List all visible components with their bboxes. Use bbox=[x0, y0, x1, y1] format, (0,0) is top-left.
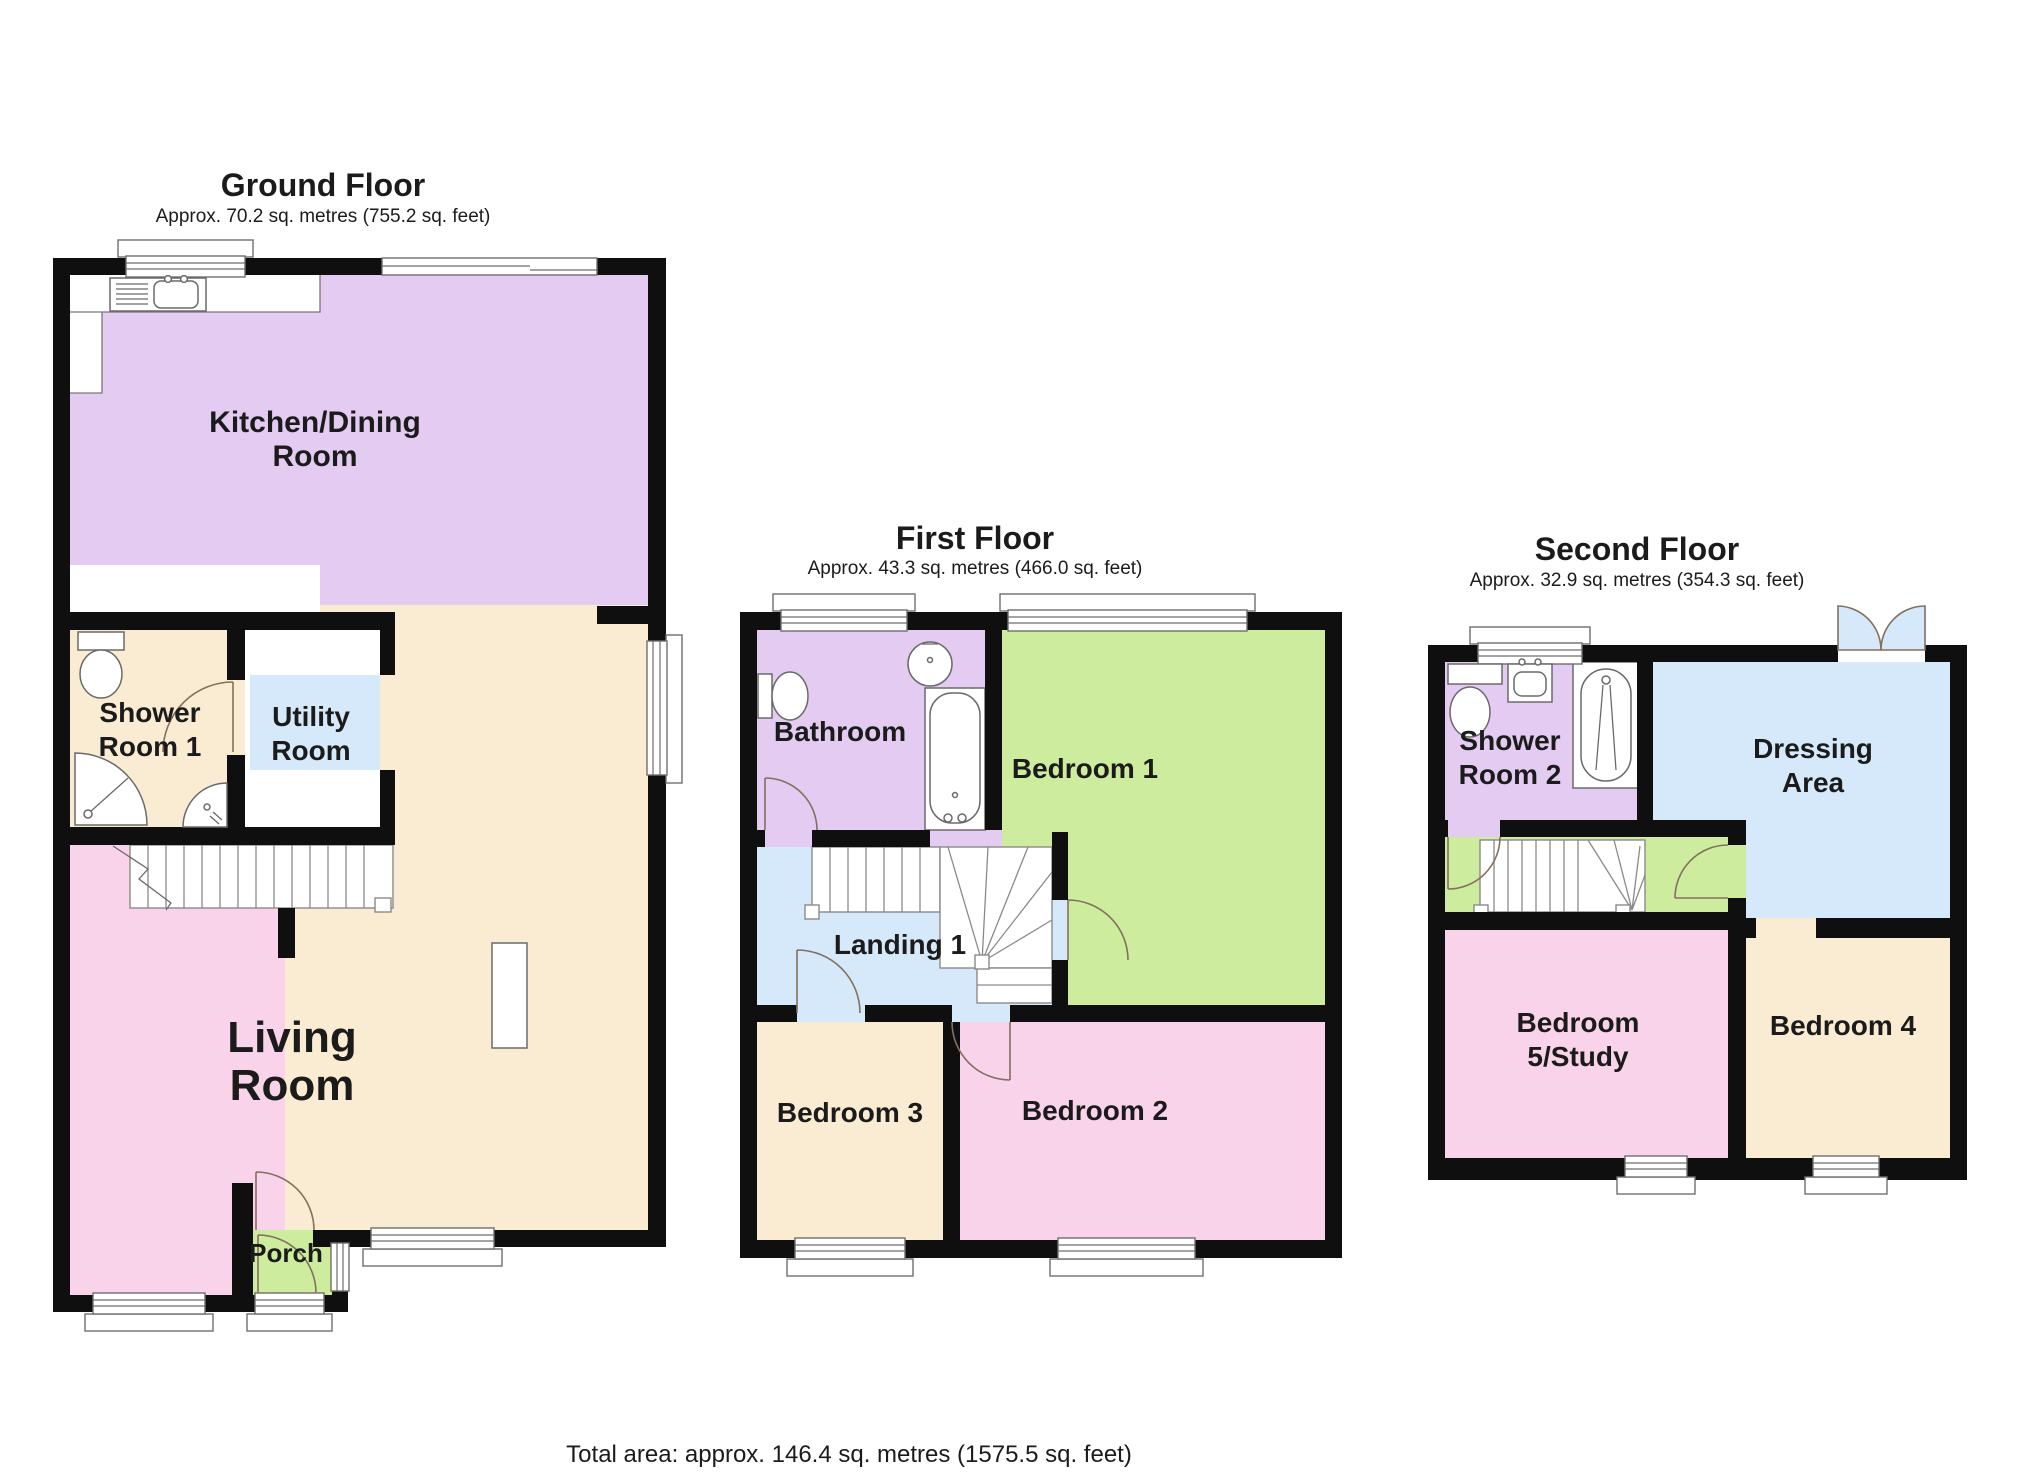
room-label-dressing: Dressing bbox=[1753, 733, 1873, 764]
shower-cubicle-icon bbox=[1573, 662, 1640, 788]
total-area-label: Total area: approx. 146.4 sq. metres (15… bbox=[566, 1441, 1132, 1468]
ground-floor-plan: Ground Floor Approx. 70.2 sq. metres (75… bbox=[53, 167, 682, 1331]
stair-newel bbox=[805, 905, 819, 919]
window bbox=[1470, 627, 1590, 664]
window bbox=[787, 1238, 913, 1276]
window bbox=[85, 1293, 213, 1331]
kitchen-counter-left bbox=[70, 275, 102, 393]
window bbox=[647, 635, 682, 783]
first-floor-title: First Floor bbox=[896, 520, 1054, 556]
basin-icon bbox=[1508, 659, 1552, 702]
room-label-shower1: Shower bbox=[99, 697, 200, 728]
kitchen-sink-icon bbox=[110, 276, 206, 311]
window bbox=[382, 258, 597, 275]
stair-newel bbox=[975, 955, 989, 969]
room-label-dressing-2: Area bbox=[1782, 767, 1845, 798]
room-label-living: Living bbox=[227, 1013, 357, 1062]
bathtub-icon bbox=[925, 688, 985, 830]
room-kitchen-dining bbox=[70, 275, 648, 605]
kitchen-floor-gap bbox=[70, 565, 320, 612]
window bbox=[773, 594, 915, 631]
floorplan-page: Ground Floor Approx. 70.2 sq. metres (75… bbox=[0, 0, 2025, 1473]
window bbox=[1617, 1156, 1695, 1194]
floorplan-canvas: Ground Floor Approx. 70.2 sq. metres (75… bbox=[0, 0, 2025, 1473]
room-bedroom3 bbox=[757, 1022, 952, 1240]
room-label-bedroom5-2: 5/Study bbox=[1527, 1041, 1629, 1072]
room-label-bedroom3: Bedroom 3 bbox=[777, 1097, 923, 1128]
room-label-bathroom: Bathroom bbox=[774, 716, 906, 747]
room-label-utility-2: Room bbox=[271, 735, 350, 766]
window bbox=[118, 240, 253, 277]
room-label-utility: Utility bbox=[272, 701, 350, 732]
room-label-kitchen-2: Room bbox=[273, 440, 358, 473]
room-label-shower1-2: Room 1 bbox=[99, 731, 202, 762]
room-label-bedroom1: Bedroom 1 bbox=[1012, 753, 1158, 784]
second-floor-subtitle: Approx. 32.9 sq. metres (354.3 sq. feet) bbox=[1470, 570, 1805, 591]
stair-newel bbox=[375, 898, 391, 912]
room-label-bedroom4: Bedroom 4 bbox=[1770, 1010, 1917, 1041]
window bbox=[1805, 1156, 1887, 1194]
window bbox=[363, 1228, 502, 1266]
staircase bbox=[113, 845, 393, 912]
room-label-shower2-2: Room 2 bbox=[1459, 759, 1562, 790]
first-floor-subtitle: Approx. 43.3 sq. metres (466.0 sq. feet) bbox=[808, 558, 1143, 579]
room-label-kitchen: Kitchen/Dining bbox=[209, 406, 421, 439]
basin-icon bbox=[908, 642, 952, 686]
room-label-bedroom5: Bedroom bbox=[1517, 1007, 1640, 1038]
second-floor-plan: Second Floor Approx. 32.9 sq. metres (35… bbox=[1428, 531, 1967, 1194]
toilet-icon bbox=[758, 672, 808, 720]
window bbox=[1000, 594, 1255, 631]
ground-floor-title: Ground Floor bbox=[221, 167, 425, 203]
staircase bbox=[1474, 840, 1645, 919]
room-label-living-2: Room bbox=[230, 1061, 355, 1110]
second-floor-title: Second Floor bbox=[1535, 531, 1739, 567]
window bbox=[247, 1293, 332, 1331]
room-label-bedroom2: Bedroom 2 bbox=[1022, 1095, 1168, 1126]
window bbox=[1050, 1238, 1203, 1276]
ground-floor-subtitle: Approx. 70.2 sq. metres (755.2 sq. feet) bbox=[156, 206, 491, 227]
room-bedroom2 bbox=[952, 1022, 1325, 1240]
double-door-icon bbox=[1838, 606, 1925, 650]
first-floor-plan: First Floor Approx. 43.3 sq. metres (466… bbox=[740, 520, 1342, 1276]
toilet-icon bbox=[78, 632, 124, 698]
room-label-shower2: Shower bbox=[1459, 725, 1560, 756]
room-label-landing1: Landing 1 bbox=[834, 929, 966, 960]
room-label-porch: Porch bbox=[249, 1238, 323, 1268]
fireplace bbox=[492, 943, 527, 1048]
window bbox=[331, 1243, 349, 1291]
